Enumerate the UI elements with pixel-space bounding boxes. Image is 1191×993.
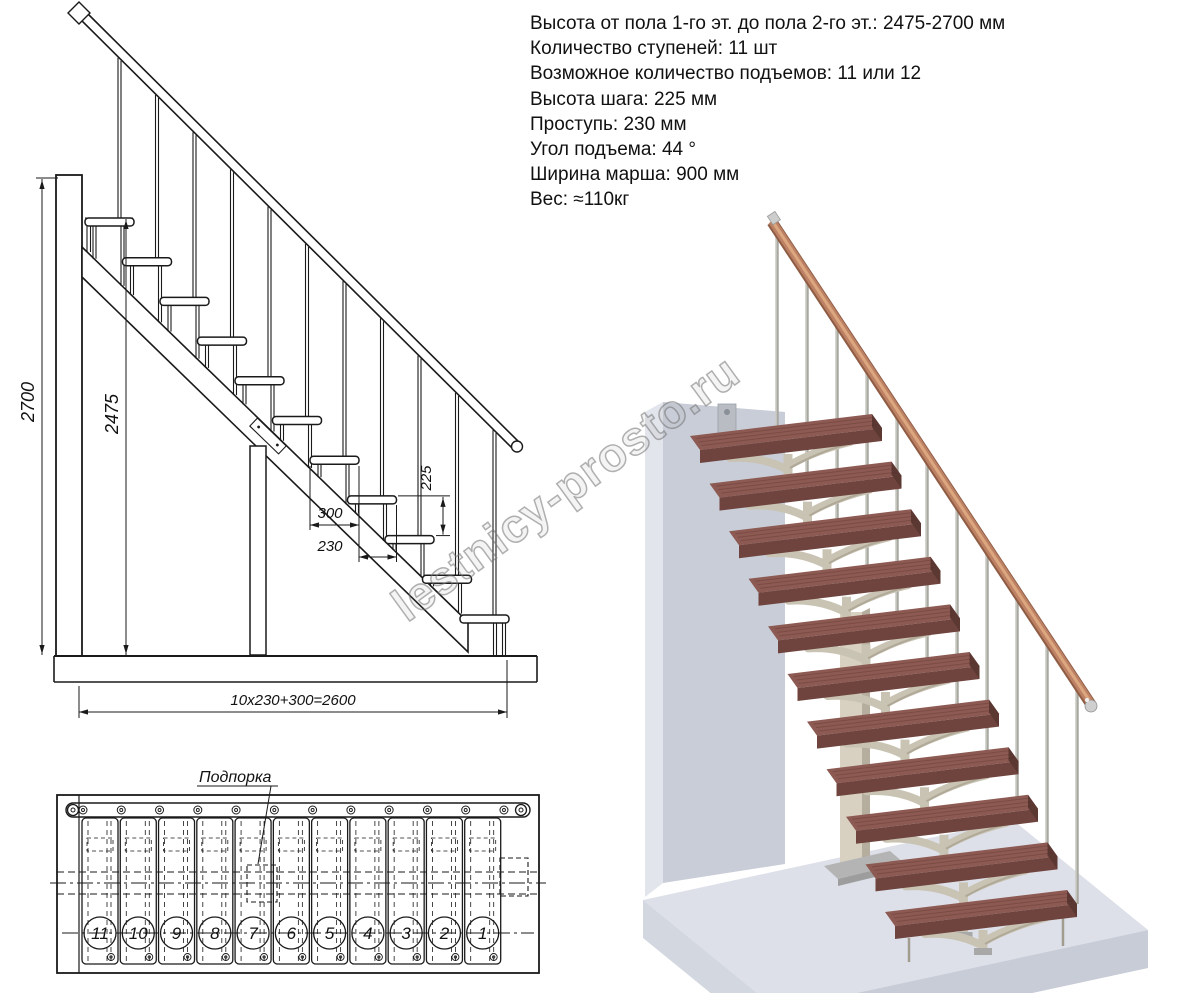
step-number: 7 [248, 924, 258, 943]
dim-going: 230 [316, 538, 343, 555]
dim-stair-height: 2475 [102, 393, 122, 435]
drawing-canvas: 1110987654321 2700 2475 300 230 225 10x2… [0, 0, 1191, 993]
plan-support-label: Подпорка [199, 769, 271, 786]
dim-riser: 225 [418, 465, 435, 492]
plan-drawing: 1110987654321 [50, 786, 546, 973]
step-number: 1 [478, 924, 487, 943]
step-number: 11 [91, 924, 109, 943]
step-number: 2 [439, 924, 450, 943]
step-number: 9 [172, 924, 182, 943]
dim-tread-depth: 300 [317, 505, 343, 522]
dim-length-formula: 10x230+300=2600 [230, 692, 356, 709]
step-number: 5 [325, 924, 335, 943]
render-3d [643, 211, 1148, 993]
step-number: 8 [210, 924, 220, 943]
step-number: 6 [287, 924, 297, 943]
elevation-drawing [36, 2, 537, 718]
spec-sheet: Высота от пола 1-го эт. до пола 2-го эт.… [0, 0, 1191, 993]
step-number: 4 [363, 924, 372, 943]
step-number: 10 [129, 924, 148, 943]
step-number: 3 [401, 924, 411, 943]
dim-total-height: 2700 [18, 382, 38, 423]
